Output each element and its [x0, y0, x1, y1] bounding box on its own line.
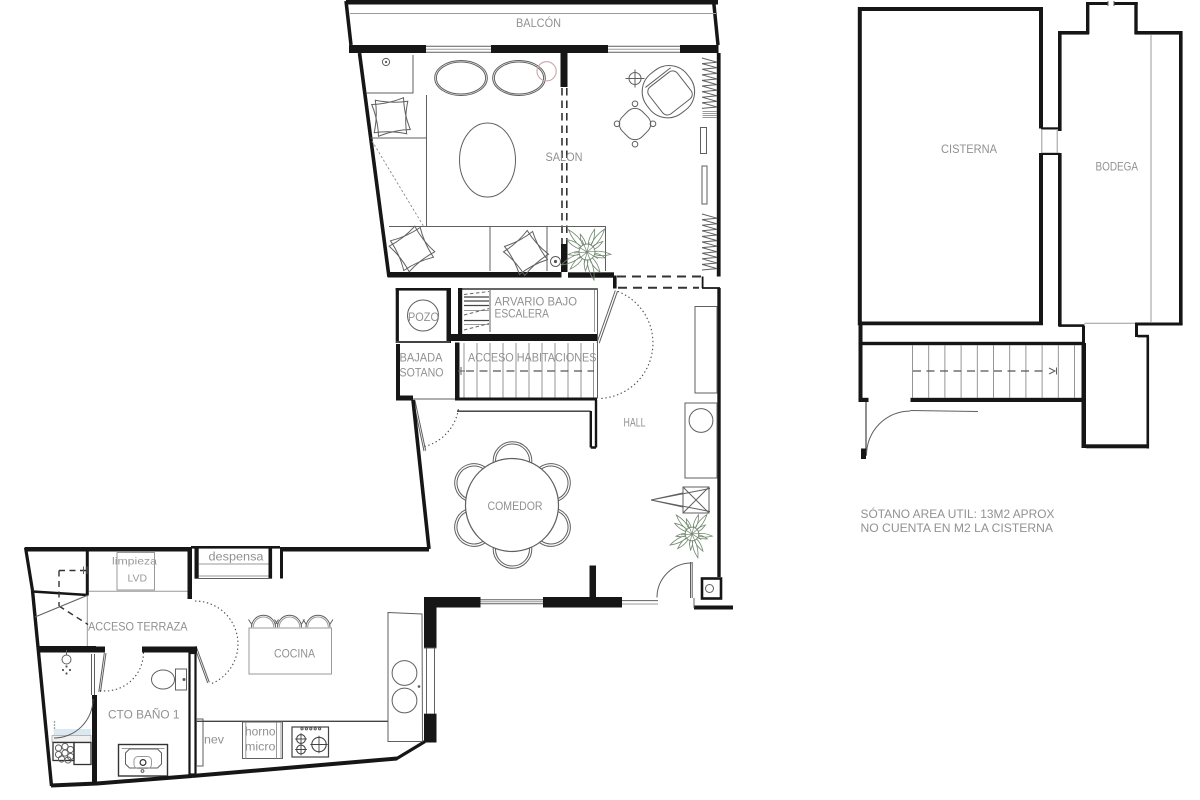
svg-text:CISTERNA: CISTERNA: [941, 142, 998, 156]
svg-text:LVD: LVD: [128, 573, 148, 585]
svg-text:nev: nev: [204, 733, 225, 747]
svg-text:COMEDOR: COMEDOR: [488, 499, 543, 513]
svg-text:horno: horno: [245, 725, 276, 739]
svg-text:despensa: despensa: [209, 550, 264, 564]
svg-text:ESCALERA: ESCALERA: [495, 307, 550, 321]
svg-text:SOTANO: SOTANO: [400, 366, 444, 380]
svg-text:micro: micro: [245, 740, 276, 754]
svg-text:CTO BAÑO 1: CTO BAÑO 1: [108, 708, 180, 722]
svg-text:BAJADA: BAJADA: [400, 351, 444, 365]
svg-text:BODEGA: BODEGA: [1096, 160, 1139, 174]
svg-text:SÓTANO AREA UTIL: 13M2 APR: SÓTANO AREA UTIL: 13M2 APROX: [861, 506, 1055, 521]
svg-text:ACCESO HABITACIONES: ACCESO HABITACIONES: [468, 351, 597, 365]
svg-text:COCINA: COCINA: [274, 647, 316, 661]
svg-text:BALCÓN: BALCÓN: [516, 15, 561, 30]
svg-text:limpieza: limpieza: [112, 556, 157, 568]
svg-text:POZO: POZO: [408, 310, 439, 324]
svg-text:ACCESO TERRAZA: ACCESO TERRAZA: [88, 620, 188, 634]
svg-text:HALL: HALL: [624, 416, 646, 430]
svg-text:NO CUENTA EN M2 LA CISTER: NO CUENTA EN M2 LA CISTERNA: [861, 521, 1054, 535]
svg-text:SALON: SALON: [546, 150, 583, 164]
